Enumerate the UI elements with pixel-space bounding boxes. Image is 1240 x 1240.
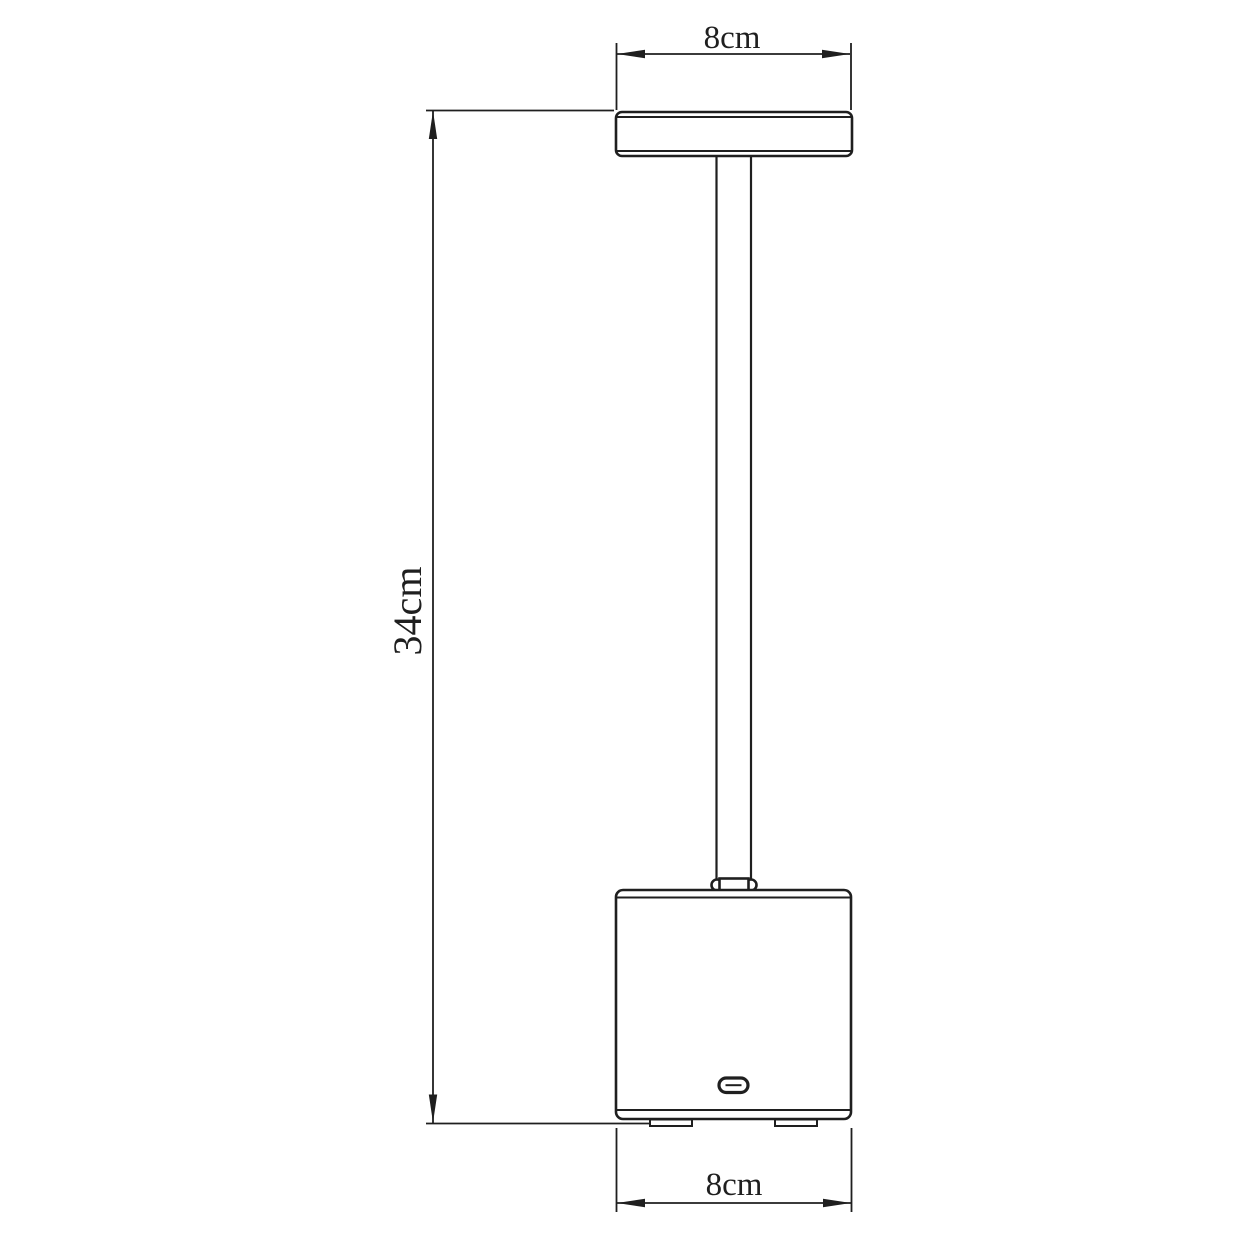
base-foot-right <box>775 1120 817 1127</box>
top-dim-arrow-right <box>822 50 850 58</box>
technical-drawing-canvas: 8cm 34cm 8cm <box>0 0 1240 1240</box>
lamp-drawing <box>616 112 852 1126</box>
dimension-top-width: 8cm <box>617 20 852 110</box>
bottom-dim-arrow-right <box>823 1199 851 1207</box>
base-width-label: 8cm <box>706 1167 763 1203</box>
lamp-head <box>616 112 852 156</box>
head-outline <box>616 112 852 156</box>
bottom-dim-arrow-left <box>617 1199 645 1207</box>
height-dim-arrow-down <box>429 1095 437 1123</box>
lamp-stem <box>717 156 752 880</box>
lamp-base <box>616 890 851 1126</box>
lamp-dimension-drawing: 8cm 34cm 8cm <box>0 0 1240 1240</box>
dimension-base-width: 8cm <box>617 1128 852 1212</box>
base-foot-left <box>650 1120 692 1127</box>
height-dim-arrow-up <box>429 111 437 139</box>
top-width-label: 8cm <box>704 20 761 56</box>
dimension-height: 34cm <box>385 111 649 1124</box>
top-dim-arrow-left <box>617 50 645 58</box>
height-label: 34cm <box>385 567 430 656</box>
